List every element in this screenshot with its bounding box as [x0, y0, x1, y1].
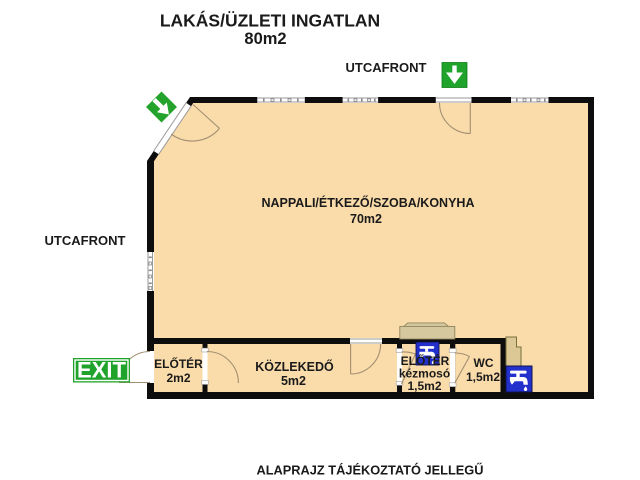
svg-text:WC: WC	[474, 356, 494, 370]
svg-text:UTCAFRONT: UTCAFRONT	[346, 60, 427, 75]
svg-text:80m2: 80m2	[244, 30, 286, 48]
svg-text:2m2: 2m2	[166, 371, 190, 385]
svg-text:NAPPALI/ÉTKEZŐ/SZOBA/KONYHA: NAPPALI/ÉTKEZŐ/SZOBA/KONYHA	[262, 195, 475, 210]
svg-text:KÖZLEKEDŐ: KÖZLEKEDŐ	[255, 359, 334, 374]
svg-text:LAKÁS/ÜZLETI INGATLAN: LAKÁS/ÜZLETI INGATLAN	[160, 10, 380, 31]
svg-text:1,5m2: 1,5m2	[466, 370, 500, 384]
svg-text:ELŐTÉR: ELŐTÉR	[154, 356, 203, 371]
svg-text:5m2: 5m2	[281, 374, 306, 388]
svg-text:1,5m2: 1,5m2	[407, 379, 441, 393]
svg-text:EXIT: EXIT	[77, 358, 126, 383]
svg-text:70m2: 70m2	[350, 212, 382, 226]
svg-text:ALAPRAJZ TÁJÉKOZTATÓ JELLEGŰ: ALAPRAJZ TÁJÉKOZTATÓ JELLEGŰ	[256, 463, 483, 478]
svg-text:UTCAFRONT: UTCAFRONT	[45, 233, 126, 248]
